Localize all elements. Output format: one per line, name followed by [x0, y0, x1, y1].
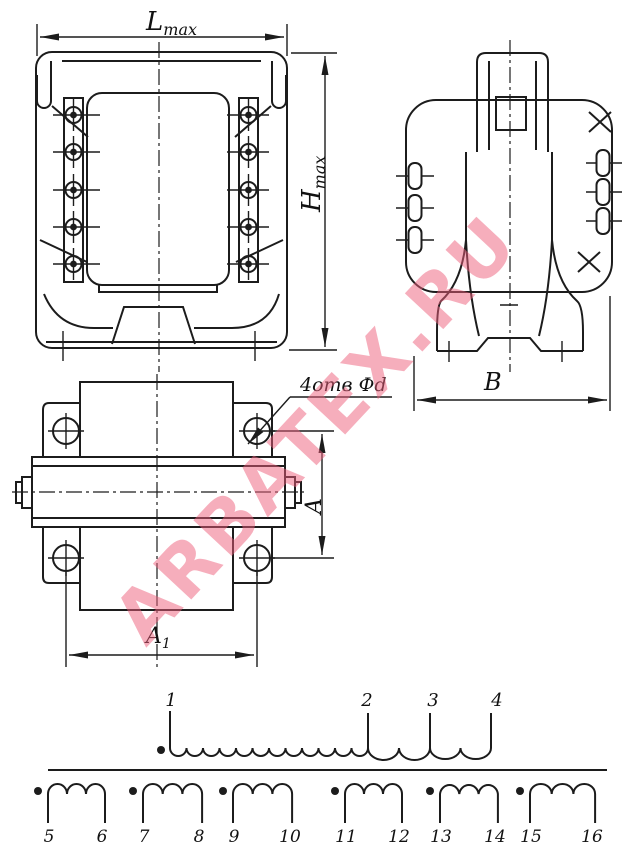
pin: [586, 208, 622, 234]
primary-section-2-3: [368, 748, 430, 760]
terminal-15-label: 15: [520, 827, 542, 847]
pin: [227, 248, 269, 280]
terminal-8-label: 8: [194, 827, 205, 847]
terminal-12-label: 12: [388, 827, 410, 847]
side-pins-right: [586, 150, 622, 234]
leg-right-inner: [539, 240, 552, 336]
leg-right-outer: [552, 240, 583, 351]
front-view: Lmax Hmax: [36, 7, 337, 372]
pin: [227, 211, 269, 243]
base-floor-right: [194, 294, 279, 328]
cover-curl-right: [272, 61, 286, 108]
polarity-dot: [219, 787, 227, 795]
secondary-winding: 15 16: [516, 784, 603, 847]
dim-b-label: B: [483, 368, 502, 396]
terminal-10-label: 10: [279, 827, 301, 847]
dim-hmax-label: Hmax: [297, 156, 329, 213]
secondary-winding: 7 8: [129, 784, 205, 847]
polarity-dot: [34, 787, 42, 795]
technical-drawing: Lmax Hmax: [0, 0, 640, 867]
secondary-winding: 9 10: [219, 784, 301, 847]
secondary-winding: 5 6: [34, 784, 108, 847]
watermark-text: ARBATEX.RU: [97, 199, 534, 659]
mounting-hole: [48, 413, 84, 449]
bracket-window: [496, 97, 526, 130]
cover-curl-left: [37, 61, 51, 108]
pin: [53, 248, 100, 280]
polarity-dot: [516, 787, 524, 795]
terminal-13-label: 13: [430, 827, 452, 847]
terminal-7-label: 7: [139, 827, 150, 847]
mounting-bracket-outer: [477, 53, 548, 152]
pin: [396, 195, 434, 221]
terminal-5-label: 5: [44, 827, 55, 847]
cross-mark-bottom: [578, 252, 600, 272]
mounting-hole: [48, 540, 84, 576]
pins-right: [227, 99, 269, 280]
primary-winding: 1 2 3 4: [157, 690, 503, 760]
side-pins-left: [396, 163, 434, 253]
pin: [53, 174, 100, 206]
secondary-winding: 13 14: [426, 785, 506, 847]
winding-schematic: 1 2 3 4 5 6 7 8 9 10: [34, 690, 607, 847]
cross-mark-top: [589, 112, 611, 132]
terminal-1-label: 1: [165, 690, 176, 711]
terminal-14-label: 14: [484, 827, 506, 847]
polarity-dot: [426, 787, 434, 795]
pin: [586, 150, 622, 176]
pin: [53, 211, 100, 243]
pin: [396, 163, 434, 189]
primary-section-3-4: [430, 748, 491, 759]
dim-lmax-label: Lmax: [145, 7, 197, 39]
terminal-2-label: 2: [360, 690, 372, 711]
primary-terminal-leads: [170, 711, 491, 748]
secondary-windings: 5 6 7 8 9 10 11 12: [34, 784, 603, 847]
pin: [227, 99, 269, 131]
coil-flange: [99, 285, 217, 292]
terminal-9-label: 9: [229, 827, 240, 847]
polarity-dot: [331, 787, 339, 795]
base-floor-left: [44, 294, 113, 328]
pin: [227, 174, 269, 206]
coil-outline: [87, 93, 229, 285]
case-lower-diagonals: [40, 240, 283, 262]
terminal-11-label: 11: [335, 827, 357, 847]
terminal-16-label: 16: [581, 827, 603, 847]
polarity-dot: [157, 746, 165, 754]
polarity-dot: [129, 787, 137, 795]
terminal-6-label: 6: [97, 827, 108, 847]
terminal-4-label: 4: [490, 690, 502, 711]
pin: [227, 136, 269, 168]
primary-section-1-2: [170, 748, 368, 756]
terminal-3-label: 3: [427, 690, 438, 711]
secondary-winding: 11 12: [331, 784, 410, 847]
dim-hmax: Hmax: [289, 53, 337, 350]
pin: [53, 136, 100, 168]
pin: [586, 179, 622, 205]
dim-lmax: Lmax: [37, 7, 287, 56]
base-foot-trapezoid: [112, 307, 195, 344]
